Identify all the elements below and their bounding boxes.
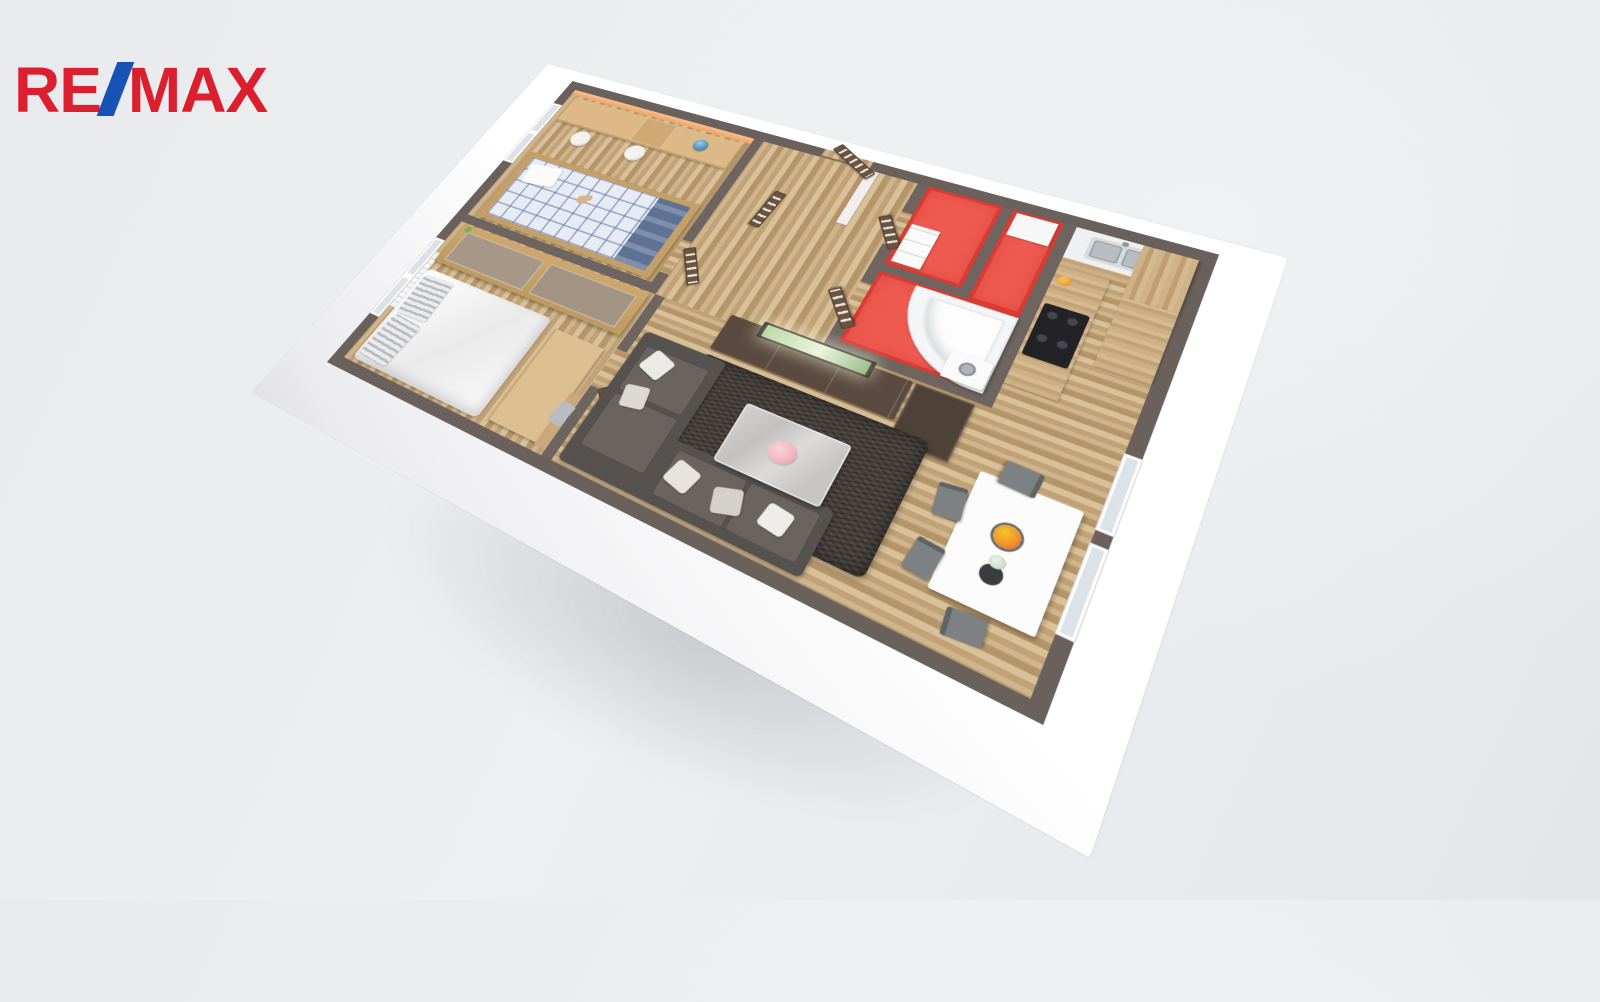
logo-text-max: MAX [128, 58, 267, 122]
remax-logo: RE / MAX [14, 58, 267, 122]
logo-text-re: RE [14, 58, 101, 122]
throw-pillow-4 [709, 486, 744, 516]
